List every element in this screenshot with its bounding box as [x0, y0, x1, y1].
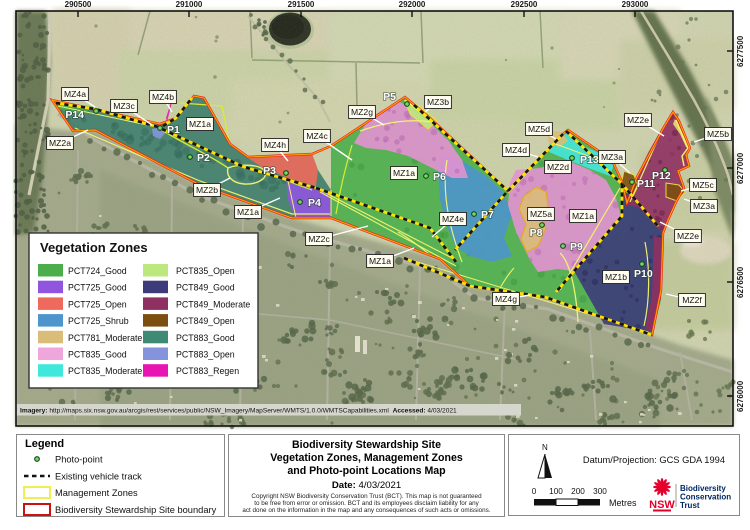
svg-text:MZ5b: MZ5b — [707, 129, 729, 139]
svg-text:MZ4a: MZ4a — [64, 89, 86, 99]
svg-text:MZ4h: MZ4h — [264, 140, 286, 150]
svg-text:MZ2a: MZ2a — [49, 138, 71, 148]
svg-text:0: 0 — [532, 487, 537, 496]
svg-text:PCT835_Open: PCT835_Open — [176, 266, 235, 276]
svg-text:MZ2c: MZ2c — [308, 234, 330, 244]
svg-text:MZ4e: MZ4e — [442, 214, 464, 224]
svg-text:Existing vehicle track: Existing vehicle track — [55, 472, 142, 482]
svg-text:P12: P12 — [652, 170, 671, 182]
svg-text:Management Zones: Management Zones — [55, 488, 138, 498]
svg-text:MZ3b: MZ3b — [427, 97, 449, 107]
svg-text:PCT849_Good: PCT849_Good — [176, 283, 235, 293]
svg-text:PCT781_Moderate: PCT781_Moderate — [68, 333, 142, 343]
svg-text:PCT725_Open: PCT725_Open — [68, 299, 127, 309]
svg-text:P10: P10 — [634, 268, 653, 280]
svg-text:MZ5c: MZ5c — [692, 180, 714, 190]
svg-text:PCT835_Moderate: PCT835_Moderate — [68, 366, 142, 376]
svg-text:MZ4g: MZ4g — [495, 294, 517, 304]
svg-text:100: 100 — [549, 487, 563, 496]
svg-text:300: 300 — [593, 487, 607, 496]
svg-text:PCT725_Shrub: PCT725_Shrub — [68, 316, 129, 326]
svg-text:MZ1a: MZ1a — [572, 211, 594, 221]
svg-text:P14: P14 — [65, 109, 84, 121]
svg-text:MZ5d: MZ5d — [528, 124, 550, 134]
svg-text:PCT849_Moderate: PCT849_Moderate — [176, 299, 250, 309]
svg-text:MZ3a: MZ3a — [693, 201, 715, 211]
svg-text:P5: P5 — [383, 91, 396, 103]
svg-text:MZ1a: MZ1a — [393, 168, 415, 178]
svg-text:P8: P8 — [530, 227, 543, 239]
svg-text:MZ1a: MZ1a — [369, 256, 391, 266]
svg-text:MZ4d: MZ4d — [505, 145, 527, 155]
svg-text:PCT849_Open: PCT849_Open — [176, 316, 235, 326]
svg-text:P1: P1 — [167, 124, 180, 136]
svg-text:NSW: NSW — [649, 499, 675, 511]
svg-text:P2: P2 — [197, 152, 210, 164]
svg-text:Biodiversity Stewardship Site: Biodiversity Stewardship Site boundary — [55, 505, 217, 515]
svg-text:MZ1b: MZ1b — [605, 272, 627, 282]
svg-text:PCT725_Good: PCT725_Good — [68, 283, 127, 293]
svg-text:MZ1a: MZ1a — [189, 119, 211, 129]
svg-text:PCT883_Good: PCT883_Good — [176, 333, 235, 343]
svg-text:P4: P4 — [308, 197, 321, 209]
svg-text:MZ3a: MZ3a — [601, 152, 623, 162]
svg-text:MZ4c: MZ4c — [306, 131, 328, 141]
svg-text:MZ1a: MZ1a — [237, 207, 259, 217]
svg-text:PCT883_Open: PCT883_Open — [176, 350, 235, 360]
svg-text:Photo-point: Photo-point — [55, 455, 103, 465]
svg-text:P3: P3 — [263, 165, 276, 177]
svg-text:MZ2f: MZ2f — [682, 295, 702, 305]
svg-text:P9: P9 — [570, 241, 583, 253]
svg-text:N: N — [542, 443, 548, 452]
svg-text:MZ2e: MZ2e — [677, 231, 699, 241]
svg-text:P6: P6 — [433, 171, 446, 183]
svg-text:MZ5a: MZ5a — [530, 209, 552, 219]
svg-text:MZ4b: MZ4b — [152, 92, 174, 102]
svg-text:PCT835_Good: PCT835_Good — [68, 350, 127, 360]
svg-text:MZ2e: MZ2e — [627, 115, 649, 125]
svg-text:P7: P7 — [481, 209, 494, 221]
svg-text:Imagery: http://maps.six.nsw.g: Imagery: http://maps.six.nsw.gov.au/arcg… — [20, 408, 457, 415]
svg-text:Datum/Projection: GCS GDA 1994: Datum/Projection: GCS GDA 1994 — [583, 455, 725, 465]
svg-text:MZ2d: MZ2d — [547, 162, 569, 172]
svg-text:Trust: Trust — [680, 501, 700, 510]
svg-text:PCT883_Regen: PCT883_Regen — [176, 366, 239, 376]
svg-text:MZ2b: MZ2b — [196, 185, 218, 195]
svg-text:P13: P13 — [580, 154, 599, 166]
svg-text:MZ2g: MZ2g — [351, 107, 373, 117]
svg-text:PCT724_Good: PCT724_Good — [68, 266, 127, 276]
svg-text:Metres: Metres — [609, 498, 637, 508]
svg-text:200: 200 — [571, 487, 585, 496]
svg-text:Vegetation Zones: Vegetation Zones — [40, 240, 148, 255]
svg-text:MZ3c: MZ3c — [113, 101, 135, 111]
